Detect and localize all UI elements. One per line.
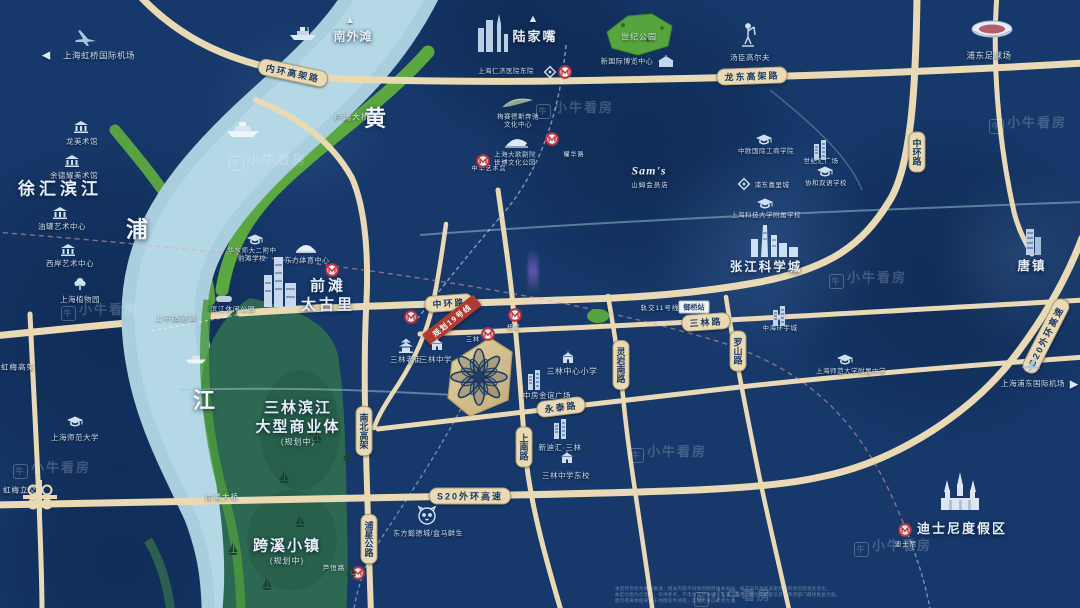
watermark: 牛小牛看房 xyxy=(854,535,932,557)
sail-boat-icon xyxy=(227,542,239,556)
watermark: 牛小牛看房 xyxy=(229,149,307,171)
station-luheng: 芦恒路 xyxy=(323,562,346,572)
long-museum-label: 龙美术馆 xyxy=(66,137,98,147)
district-south-bund: 南外滩 xyxy=(333,30,372,45)
sanlin-old-street-icon xyxy=(397,339,415,354)
watermark-text: 小牛看房 xyxy=(872,538,932,553)
watermark-logo-icon: 牛 xyxy=(229,156,244,171)
road-s20: S20外环高速 xyxy=(429,488,511,505)
district-zhangjiang: 张江科学城 xyxy=(730,260,803,276)
golf-club-icon xyxy=(738,23,758,49)
sail-boat-icon xyxy=(278,470,290,484)
xiehe-school-icon xyxy=(817,167,833,178)
tangzhen-tower-icon xyxy=(1022,227,1044,255)
grand-opera-icon xyxy=(503,134,529,148)
pudong-airport-icon xyxy=(1019,355,1043,373)
watermark-logo-icon: 牛 xyxy=(61,306,76,321)
watermark-text: 小牛看房 xyxy=(1007,115,1067,130)
district-kuaxi-town-text: 跨溪小镇 xyxy=(253,538,321,555)
century-link-mall-label: 世纪汇广场 xyxy=(804,158,839,166)
west-bund-art-label: 西岸艺术中心 xyxy=(46,259,94,269)
bridge-xupu: 徐浦大桥 xyxy=(205,492,239,503)
district-sanlin-binjiang: 三林滨江大型商业体(规划中) xyxy=(255,399,340,447)
metro-station-icon xyxy=(404,310,418,324)
watermark: 牛小牛看房 xyxy=(989,112,1067,134)
road-lingyan: 灵岩南路 xyxy=(613,340,630,390)
district-xuhui-binjiang: 徐汇滨江 xyxy=(18,178,102,199)
pudong-stadium-icon xyxy=(970,19,1014,41)
watermark: 牛小牛看房 xyxy=(829,267,907,289)
map-canvas: 徐汇滨江前滩太古里三林滨江大型商业体(规划中)跨溪小镇(规划中)张江科学城唐镇迪… xyxy=(0,0,1080,608)
watermark-text: 小牛看房 xyxy=(79,302,139,317)
new-expo-center-label: 新国际博览中心 xyxy=(601,57,654,66)
yuz-museum-icon xyxy=(64,155,80,167)
grand-opera-label: 上海大歌剧院世博文化公园 xyxy=(494,152,536,169)
benz-arena-label: 梅赛德斯奔驰文化中心 xyxy=(497,114,539,131)
shanghaitech-school-label: 上海科技大学附属学校 xyxy=(731,212,801,220)
watermark-logo-icon: 牛 xyxy=(13,464,28,479)
station-yuqiao-badge: 御桥站 xyxy=(679,301,710,314)
sail-boat-icon xyxy=(311,430,323,444)
watermark-logo-icon: 牛 xyxy=(829,274,844,289)
long-museum-icon xyxy=(73,121,89,133)
river-ferry-icon xyxy=(185,354,207,365)
district-tangzhen: 唐镇 xyxy=(1017,259,1046,275)
metro-station-icon xyxy=(508,308,522,322)
sanlin-middle-east-label: 三林中学东校 xyxy=(542,471,590,481)
metro-station-icon xyxy=(558,65,572,79)
planned-line-marker xyxy=(528,248,538,294)
shnu-icon xyxy=(67,417,83,428)
district-kuaxi-town-sub: (规划中) xyxy=(253,556,321,566)
botanical-garden-icon xyxy=(73,277,87,291)
watermark-logo-icon: 牛 xyxy=(989,119,1004,134)
zhonghai-huanyu-icon xyxy=(770,306,788,326)
river-cruise-icon xyxy=(225,120,261,138)
road-zhonghuan-v: 中环路 xyxy=(909,132,926,173)
oriental-sports-icon xyxy=(295,243,317,254)
fineprint-line: 图示距离数据来源于地图软件测距，实际距离以实地为准。 xyxy=(615,598,915,604)
huaer-qiantan-icon xyxy=(247,235,263,246)
district-south-bund-text: 南外滩 xyxy=(333,30,372,44)
district-qiantan-taikooli-line: 前滩 xyxy=(310,277,346,294)
metro-station-icon xyxy=(545,132,559,146)
hema-store-icon xyxy=(416,504,438,526)
district-lujiazui-text: 陆家嘴 xyxy=(512,29,557,44)
jinyi-plaza-icon xyxy=(525,370,543,390)
zhonghai-huanyu-label: 中海环宇城 xyxy=(763,325,798,333)
poi-century-park: 世纪公园 xyxy=(621,32,657,43)
sanlin-middle-label: 三林中学 xyxy=(420,355,452,365)
district-qiantan-taikooli-line: 太古里 xyxy=(301,296,355,313)
direction-arrow-icon: ◀ xyxy=(42,49,50,62)
pudong-airport-label: 上海浦东国际机场 xyxy=(1001,379,1065,389)
watermark-logo-icon: 牛 xyxy=(629,448,644,463)
sail-boat-icon xyxy=(294,514,306,528)
sanlin-middle-east-icon xyxy=(559,452,575,465)
cloverleaf-icon xyxy=(23,480,57,514)
project-site-logo xyxy=(450,348,508,406)
pudong-stadium-label: 浦东足球场 xyxy=(966,50,1011,61)
yuz-museum-label: 余德耀美术馆 xyxy=(50,171,98,181)
district-kuaxi-town: 跨溪小镇(规划中) xyxy=(253,538,321,567)
huaer-qiantan-label-line: 华东师大二附中 xyxy=(228,248,277,255)
road-neihuan: 内环高架路 xyxy=(257,57,330,88)
metro-station-icon xyxy=(481,327,495,341)
benz-arena-label-line: 梅赛德斯奔驰 xyxy=(497,114,539,121)
district-xuhui-binjiang-text: 徐汇滨江 xyxy=(18,179,102,198)
bridge-lupu: 卢浦大桥 xyxy=(334,112,370,123)
lujiazui-towers-icon xyxy=(474,14,510,52)
watermark-text: 小牛看房 xyxy=(847,270,907,285)
direction-arrow-icon: ▲ xyxy=(345,14,356,26)
bund-ship-icon xyxy=(288,25,318,41)
hema-store-label: 东方懿德城/盒马鲜生 xyxy=(393,529,463,538)
sams-club-text: Sam's xyxy=(631,164,666,178)
disclaimer-fineprint: 本宣传资料为要约邀请，相关内容不排除因政府相关规划、规定及开发商未能控制的原因而… xyxy=(615,586,915,604)
kerry-parkside-label: 浦东嘉里城 xyxy=(755,182,790,190)
road-longdong: 龙东高架路 xyxy=(716,66,788,85)
district-qiantan-taikooli: 前滩太古里 xyxy=(301,277,355,315)
road-puxing: 浦星公路 xyxy=(361,514,378,564)
grand-opera-label-line: 世博文化公园 xyxy=(494,160,536,167)
ceibs-icon xyxy=(756,135,772,146)
sanlin-primary-label: 三林中心小学 xyxy=(547,367,598,377)
station-yangsi: 杨思 xyxy=(507,323,521,332)
watermark-text: 小牛看房 xyxy=(554,100,614,115)
road-hongmei-elevated: 虹梅高架 xyxy=(1,362,35,373)
district-sanlin-binjiang-line: 三林滨江 xyxy=(264,399,332,416)
shnu-label: 上海师范大学 xyxy=(51,433,99,443)
sanlin-old-street-label: 三林老街 xyxy=(390,355,422,365)
sail-boat-icon xyxy=(345,564,357,578)
jinyi-plaza-label: 中房金谊广场 xyxy=(523,391,571,401)
poi-riverside-park: 滨江休闲公园 xyxy=(211,303,256,313)
dock-icon xyxy=(216,295,232,303)
river-name-char: 江 xyxy=(193,383,215,415)
tunnel-shangzhong: 上中路隧道 xyxy=(155,313,198,324)
tank-art-center-label: 油罐艺术中心 xyxy=(38,222,86,232)
watermark: 牛小牛看房 xyxy=(61,299,139,321)
benz-arena-label-line: 文化中心 xyxy=(504,122,532,129)
sams-club-sub: 山姆会员店 xyxy=(631,179,669,189)
qiantan-towers-icon xyxy=(260,257,300,307)
sail-boat-icon xyxy=(342,448,354,462)
metro-station-icon xyxy=(476,154,490,168)
district-disney-text: 迪士尼度假区 xyxy=(917,521,1007,536)
kerry-parkside-icon xyxy=(737,177,751,191)
metro-station-icon xyxy=(325,263,339,277)
district-tangzhen-text: 唐镇 xyxy=(1017,259,1046,273)
road-shangnan: 上南路 xyxy=(516,427,533,468)
shnu-affiliated-label: 上海师范大学附属中学 xyxy=(816,368,886,376)
grand-opera-label-line: 上海大歌剧院 xyxy=(494,152,536,159)
tank-art-center-icon xyxy=(52,207,68,219)
district-sanlin-binjiang-sub: (规划中) xyxy=(255,437,340,447)
watermark-text: 小牛看房 xyxy=(647,444,707,459)
hongqiao-airport-icon xyxy=(72,27,98,47)
renji-hospital-icon xyxy=(543,65,557,79)
watermark-text: 小牛看房 xyxy=(31,460,91,475)
direction-arrow-icon: ▶ xyxy=(1070,378,1078,391)
district-sanlin-binjiang-line: 大型商业体 xyxy=(255,418,340,435)
watermark-logo-icon: 牛 xyxy=(854,542,869,557)
disney-castle-icon xyxy=(937,472,983,512)
xindihui-sanlin-icon xyxy=(551,419,569,439)
direction-arrow-icon: ▲ xyxy=(528,13,539,25)
watermark: 牛小牛看房 xyxy=(536,97,614,119)
shnu-affiliated-icon xyxy=(837,355,853,366)
road-sanlin: 三林路 xyxy=(681,312,731,332)
road-luoshan: 罗山路 xyxy=(730,331,747,372)
sanlin-primary-icon xyxy=(560,352,576,365)
benz-arena-icon xyxy=(501,95,535,109)
metro-line11-text: 轨交11号线 xyxy=(641,302,680,312)
zhangjiang-skyline-icon xyxy=(749,225,801,257)
west-bund-art-icon xyxy=(60,244,76,256)
sams-club: Sam's xyxy=(631,164,666,179)
map-labels-layer: 徐汇滨江前滩太古里三林滨江大型商业体(规划中)跨溪小镇(规划中)张江科学城唐镇迪… xyxy=(0,0,1080,608)
golf-club-label: 汤臣高尔夫 xyxy=(730,53,770,63)
district-zhangjiang-text: 张江科学城 xyxy=(730,260,803,274)
xiehe-school-label: 协和双语学校 xyxy=(805,180,847,188)
renji-hospital-label: 上海仁济医院东院 xyxy=(478,68,534,76)
ceibs-label: 中欧国际工商学院 xyxy=(738,148,794,156)
river-name-char: 浦 xyxy=(126,212,148,244)
watermark: 牛小牛看房 xyxy=(13,457,91,479)
hongqiao-airport-label: 上海虹桥国际机场 xyxy=(63,50,135,61)
station-sanlin: 三林 xyxy=(466,335,480,344)
station-yaohua: 耀华路 xyxy=(563,150,584,159)
sanlin-middle-icon xyxy=(429,339,445,352)
new-expo-center-icon xyxy=(656,55,676,69)
road-nanbei: 南北高架 xyxy=(356,406,373,456)
watermark-text: 小牛看房 xyxy=(247,152,307,167)
watermark: 牛小牛看房 xyxy=(629,441,707,463)
watermark-logo-icon: 牛 xyxy=(536,104,551,119)
shanghaitech-school-icon xyxy=(757,199,773,210)
sail-boat-icon xyxy=(261,577,273,591)
district-lujiazui: 陆家嘴 xyxy=(512,29,557,45)
